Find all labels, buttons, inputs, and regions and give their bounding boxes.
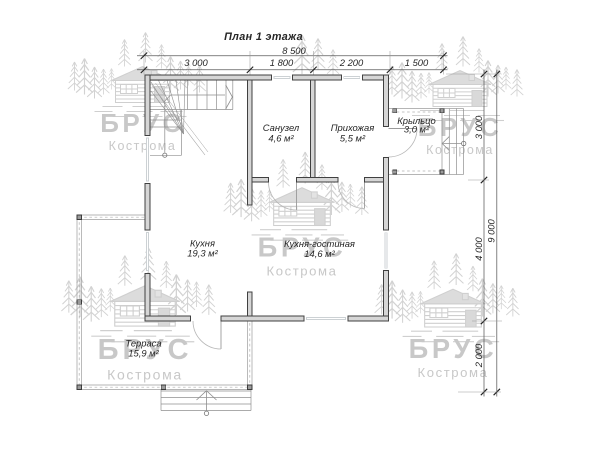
svg-text:14,6 м²: 14,6 м²: [304, 248, 335, 259]
svg-text:2 200: 2 200: [339, 57, 364, 68]
svg-text:Прихожая: Прихожая: [331, 122, 374, 133]
svg-text:План 1 этажа: План 1 этажа: [224, 31, 303, 43]
svg-text:4 000: 4 000: [473, 236, 484, 260]
svg-text:2 000: 2 000: [473, 343, 484, 368]
svg-text:4,6 м²: 4,6 м²: [268, 133, 294, 144]
svg-text:1 500: 1 500: [405, 57, 429, 68]
svg-text:5,5 м²: 5,5 м²: [340, 133, 366, 144]
svg-text:8 500: 8 500: [282, 45, 306, 56]
svg-text:1 800: 1 800: [270, 57, 294, 68]
svg-text:3 000: 3 000: [184, 57, 208, 68]
svg-text:Санузел: Санузел: [263, 122, 300, 133]
svg-text:3,0 м²: 3,0 м²: [404, 124, 430, 135]
svg-text:9 000: 9 000: [486, 218, 497, 242]
svg-text:19,3 м²: 19,3 м²: [187, 248, 218, 259]
svg-text:15,9 м²: 15,9 м²: [128, 348, 159, 359]
svg-text:3 000: 3 000: [473, 115, 484, 139]
